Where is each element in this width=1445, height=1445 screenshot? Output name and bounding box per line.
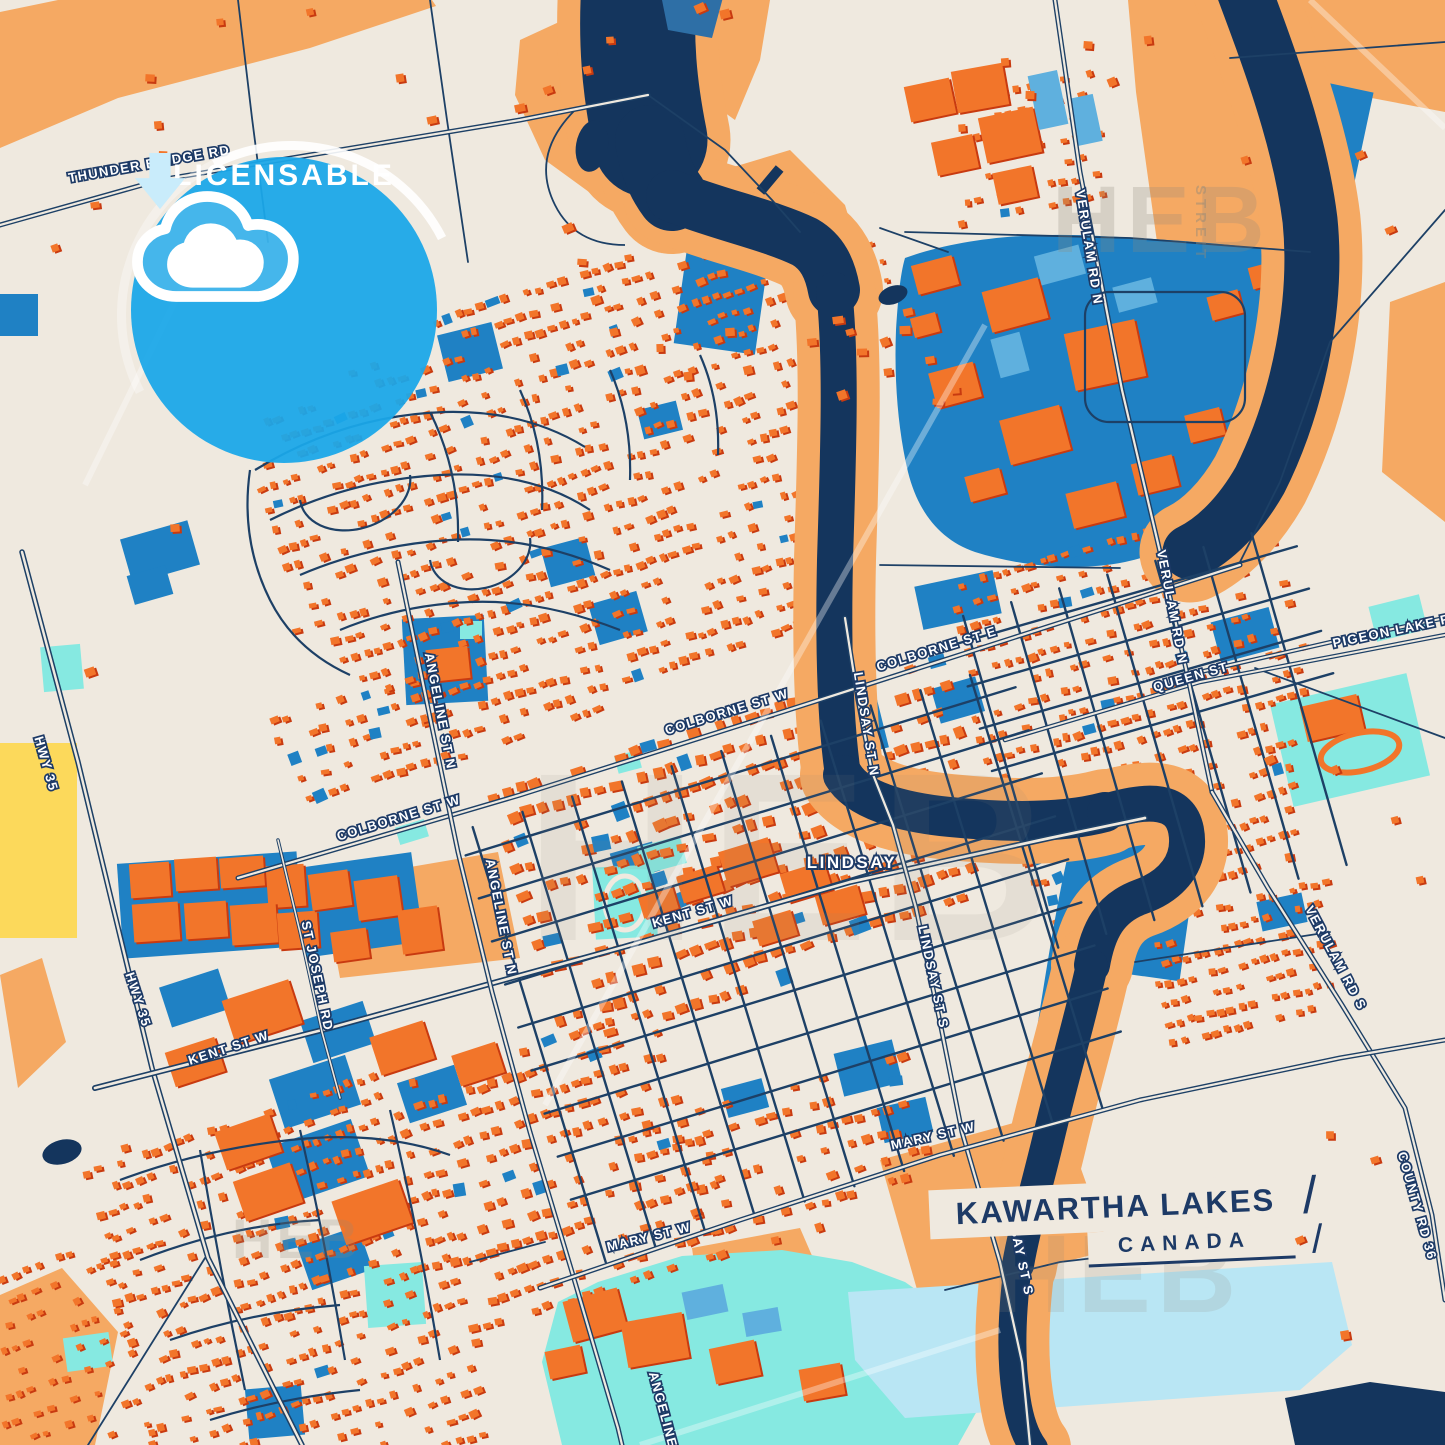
watermark-text: STREIT (1192, 185, 1209, 262)
map-title-block: KAWARTHA LAKES CANADA / / (946, 1174, 1295, 1273)
map-poster: HEBHEBSTREITHEBHEBSTREITTHUNDER BRIDGE R… (0, 0, 1445, 1445)
watermark-text: HEB (525, 723, 1062, 991)
city-label: LINDSAY (807, 853, 898, 872)
licensable-badge[interactable]: LICENSABLE (131, 157, 437, 463)
download-arrow-icon (131, 153, 189, 211)
watermark-text: HEB (232, 1207, 362, 1270)
badge-label: LICENSABLE (173, 159, 395, 193)
subtitle-separator: / (1311, 1217, 1324, 1262)
